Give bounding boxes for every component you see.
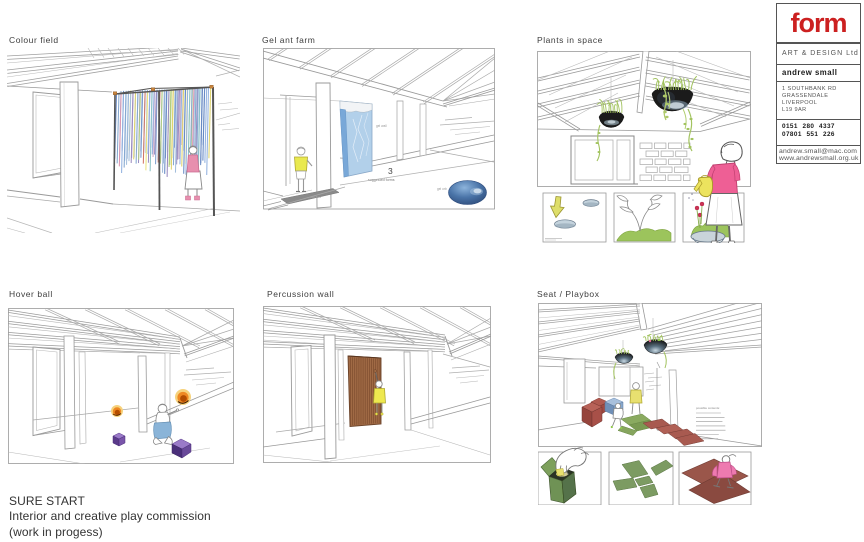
svg-text:3: 3 [388, 166, 393, 176]
svg-text:gel wall: gel wall [376, 124, 387, 128]
svg-text:gel orb: gel orb [437, 187, 447, 191]
svg-text:possible contents:: possible contents: [696, 406, 720, 410]
svg-text:soft floor: soft floor [310, 195, 322, 199]
